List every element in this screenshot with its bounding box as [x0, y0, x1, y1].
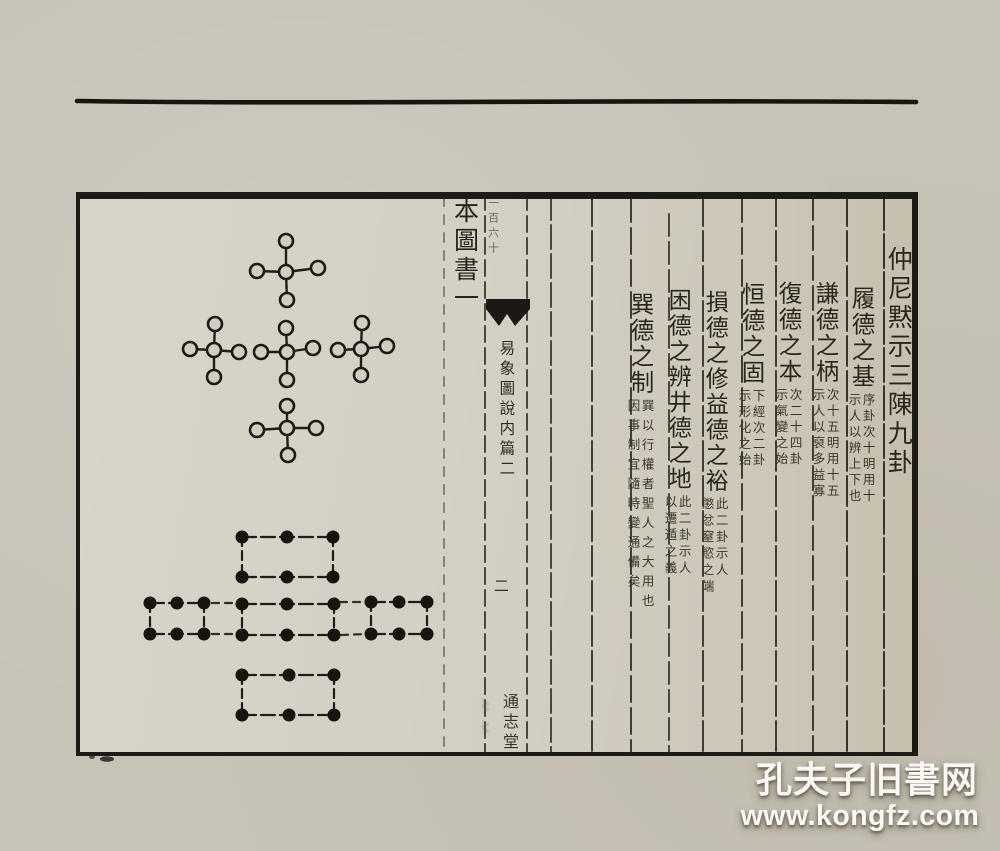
earth-diagram-dot [327, 531, 340, 544]
spine-handwritten-note: 一百六十 [487, 197, 499, 257]
heaven-diagram-circle [280, 399, 294, 413]
heaven-diagram-circle [254, 345, 268, 359]
column-main-text: 復德之本 [776, 281, 801, 385]
heaven-diagram-circle [280, 373, 294, 387]
earth-diagram-dot [328, 598, 341, 611]
heaven-diagram-circle [280, 421, 294, 435]
watermark: 孔夫子旧書网 www.kongfz.com [723, 751, 997, 833]
annotation-right: 次二十四卦 [789, 388, 802, 468]
earth-diagram-dot [236, 669, 249, 682]
annotation-left: 示人以辨上下也 [847, 393, 860, 505]
heaven-diagram-circle [279, 234, 293, 248]
heaven-diagram-circle [232, 345, 246, 359]
column-annotation: 巽以行權者聖人之大用也因事制宜隨時變通備矣 [626, 399, 653, 614]
heaven-diagram-circle [280, 345, 294, 359]
annotation-left: 示形化之始 [737, 389, 750, 469]
earth-diagram-dot [236, 629, 249, 642]
text-column: 謙德之柄次十五明用十五示人以裒多益寡 [804, 281, 846, 500]
column-annotation: 序卦次十明用十示人以辨上下也 [847, 393, 874, 505]
spine-page-number: 二 [492, 578, 508, 593]
watermark-url: www.kongfz.com [723, 800, 997, 833]
earth-diagram-dot [421, 628, 434, 641]
earth-diagram-dot [365, 596, 378, 609]
earth-diagram-dot [198, 597, 211, 610]
column-main-text: 巽德之制 [628, 292, 653, 396]
text-column: 復德之本次二十四卦示氣變之始 [767, 281, 809, 468]
column-main-text: 損德之修益德之裕 [702, 290, 726, 494]
heaven-diagram-circle [280, 293, 294, 307]
spine-title: 易象圖說内篇二 [498, 340, 514, 480]
heaven-diagram-circle [355, 316, 369, 330]
annotation-right: 序卦次十明用十 [862, 393, 875, 505]
heaven-diagram-circle [311, 261, 325, 275]
heaven-diagram-circle [354, 342, 368, 356]
column-main-text: 履德之基 [849, 286, 874, 390]
annotation-left: 示人以裒多益寡 [811, 388, 824, 500]
heaven-diagram-circle [183, 342, 197, 356]
watermark-site-name: 孔夫子旧書网 [723, 751, 997, 803]
earth-diagram-dot [328, 669, 341, 682]
earth-diagram-dot [327, 571, 340, 584]
earth-diagram-dot [283, 669, 296, 682]
earth-diagram-dot [236, 571, 249, 584]
text-column: 仲尼黙示三陳九卦 [877, 246, 919, 478]
ink-blot [100, 756, 114, 762]
earth-diagram-dot [171, 597, 184, 610]
earth-diagram-dot [236, 709, 249, 722]
annotation-right: 次十五明用十五 [826, 388, 839, 500]
heaven-diagram-circle [354, 368, 368, 382]
annotation-right: 此二卦示人 [715, 497, 728, 596]
column-annotation: 次二十四卦示氣變之始 [774, 388, 801, 468]
column-main-text: 恒德之固 [739, 282, 764, 386]
scanned-book-page: 本圖書一 一百六十 易象圖說内篇二 二 通志堂 〻〻 仲尼黙示三陳九卦履德之基序… [0, 0, 1000, 851]
column-main-text: 仲尼黙示三陳九卦 [885, 246, 912, 478]
heaven-diagram-circle [309, 421, 323, 435]
top-rule-line [77, 101, 916, 102]
annotation-left: 因事制宜隨時變通備矣 [626, 399, 639, 614]
text-column: 巽德之制巽以行權者聖人之大用也因事制宜隨時變通備矣 [619, 292, 661, 614]
earth-diagram-dot [283, 709, 296, 722]
ink-blot [89, 755, 95, 759]
earth-diagram-dot [281, 598, 294, 611]
heaven-diagram-circle [279, 321, 293, 335]
fishtail-mark [486, 299, 530, 326]
earth-diagram-dot [281, 629, 294, 642]
heaven-diagram-circle [208, 317, 222, 331]
heaven-diagram-circle [306, 341, 320, 355]
heaven-diagram-circle [207, 343, 221, 357]
earth-diagram-dot [144, 597, 157, 610]
text-column: 履德之基序卦次十明用十示人以辨上下也 [840, 286, 882, 505]
heaven-diagram-circle [250, 264, 264, 278]
heaven-diagram-circle [250, 423, 264, 437]
column-annotation: 次十五明用十五示人以裒多益寡 [811, 388, 838, 500]
column-main-text: 謙德之柄 [813, 281, 838, 385]
heaven-diagram-circle [279, 265, 293, 279]
column-main-text: 困德之辨井德之地 [665, 288, 689, 492]
annotation-right: 下經次二卦 [752, 389, 765, 469]
column-annotation: 此二卦示人以遷遁之義 [663, 495, 690, 578]
earth-diagram-connector [341, 634, 366, 635]
annotation-right: 巽以行權者聖人之大用也 [641, 399, 654, 614]
earth-diagram-dot [144, 628, 157, 641]
text-column: 恒德之固下經次二卦示形化之始 [730, 282, 772, 469]
annotation-left: 示氣變之始 [774, 388, 787, 468]
earth-diagram-dot [281, 531, 294, 544]
spine-publisher-mark: 通志堂 [500, 693, 517, 753]
header-column-text: 本圖書一 [451, 198, 478, 314]
annotation-right: 此二卦示人 [678, 495, 691, 578]
text-column: 困德之辨井德之地此二卦示人以遷遁之義 [656, 288, 698, 578]
earth-diagram-dot [393, 596, 406, 609]
column-annotation: 下經次二卦示形化之始 [737, 389, 764, 469]
annotation-left: 以遷遁之義 [663, 495, 676, 578]
earth-diagram-dot [236, 598, 249, 611]
heaven-diagram-circle [331, 343, 345, 357]
text-column: 損德之修益德之裕此二卦示人懲忿窒慾之端 [693, 290, 735, 596]
earth-diagram-dot [171, 628, 184, 641]
heaven-diagram-circle [207, 370, 221, 384]
earth-diagram-dot [328, 709, 341, 722]
column-annotation: 此二卦示人懲忿窒慾之端 [700, 497, 727, 596]
earth-diagram-dot [198, 628, 211, 641]
ink-smudge: 〻〻 [476, 698, 492, 740]
earth-diagram-dot [281, 571, 294, 584]
heaven-diagram-circle [281, 448, 295, 462]
earth-diagram-dot [365, 628, 378, 641]
annotation-left: 懲忿窒慾之端 [700, 497, 713, 596]
earth-diagram-dot [421, 596, 434, 609]
earth-diagram-dot [236, 531, 249, 544]
heaven-diagram-circle [380, 339, 394, 353]
earth-diagram-dot [393, 628, 406, 641]
earth-diagram-dot [328, 629, 341, 642]
